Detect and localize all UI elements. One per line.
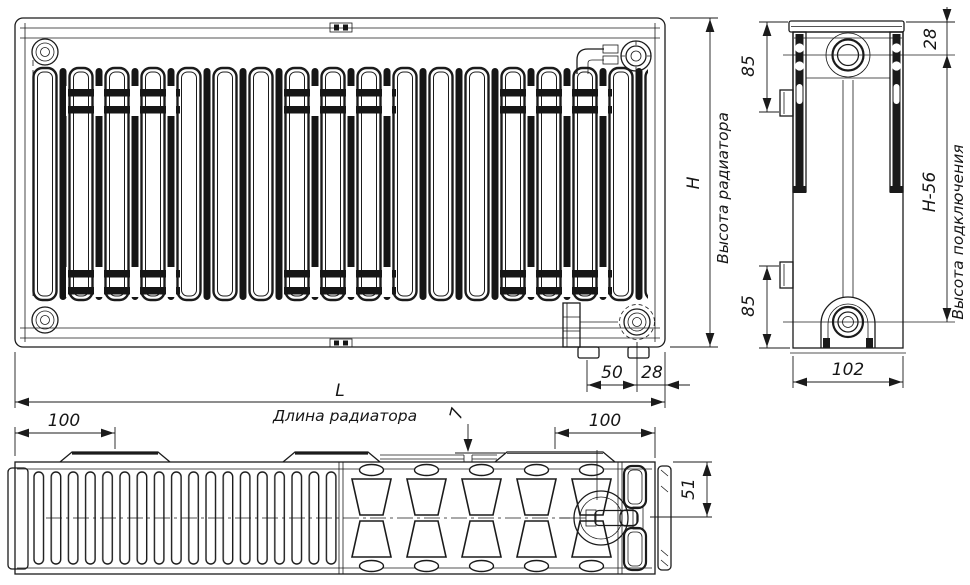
dim-50: 50	[601, 363, 623, 383]
right-end-block	[618, 462, 646, 574]
section-cut-line	[339, 462, 343, 574]
right-end-cap	[658, 466, 671, 570]
dim-85-lower: 85	[739, 295, 759, 317]
dim-depth-102: 102	[793, 356, 903, 388]
mount-rail-right	[890, 32, 903, 193]
corner-plug-top-left	[32, 39, 58, 65]
valve-assembly	[563, 303, 655, 358]
dim-85-top: 85	[739, 22, 788, 112]
left-end-cap	[8, 468, 28, 569]
dim-28-side: 28	[921, 28, 941, 50]
mount-rail-left	[793, 32, 806, 193]
dim-28-front: 28	[641, 363, 663, 383]
bracket-tab-lower	[780, 262, 793, 288]
corner-plug-bottom-left	[32, 307, 58, 333]
dim-51: 51	[650, 462, 712, 517]
bottom-port	[821, 297, 875, 348]
bracket-tab-upper	[780, 90, 793, 116]
connection-stub-right	[628, 347, 649, 358]
clip-band-top	[66, 86, 612, 116]
dim-100-r: 100	[589, 411, 621, 431]
dim-H56: H-56	[920, 172, 940, 213]
dim-7: 7	[446, 406, 468, 422]
dim-50-28: 50 28	[587, 342, 690, 392]
front-view	[15, 18, 665, 358]
dim-28-side-top: 28	[906, 7, 955, 70]
dim-85-upper: 85	[739, 55, 759, 77]
dim-51-text: 51	[679, 478, 699, 500]
dim-100-right: 100	[555, 411, 655, 458]
edge-tab-top	[330, 23, 352, 32]
dim-L-label: Длина радиатора	[272, 407, 417, 425]
dim-100-l: 100	[48, 411, 80, 431]
edge-tab-bottom	[330, 339, 352, 347]
connection-stub-left	[578, 347, 599, 358]
dim-L-letter: L	[335, 381, 344, 401]
bottom-view	[8, 450, 671, 574]
dim-102: 102	[832, 360, 864, 380]
dim-100-left: 100	[15, 411, 115, 456]
dim-H56-label: Высота подключения	[949, 144, 967, 319]
radiator-drawing: H Высота радиатора L Длина радиатора 50 …	[0, 0, 970, 585]
dim-H-letter: H	[684, 176, 704, 189]
side-body	[793, 32, 903, 348]
drawing-canvas: H Высота радиатора L Длина радиатора 50 …	[0, 0, 970, 585]
cover-strip-gap	[380, 455, 497, 462]
dim-H-label: Высота радиатора	[714, 112, 732, 264]
dim-85-bottom: 85	[739, 266, 790, 348]
dim-radiator-height: H Высота радиатора	[670, 18, 732, 347]
clip-band-bottom	[66, 267, 612, 297]
dim-connection-height: H-56 Высота подключения	[920, 55, 967, 322]
dim-gap-7: 7	[446, 406, 505, 453]
dim-radiator-length: L Длина радиатора	[15, 352, 665, 425]
